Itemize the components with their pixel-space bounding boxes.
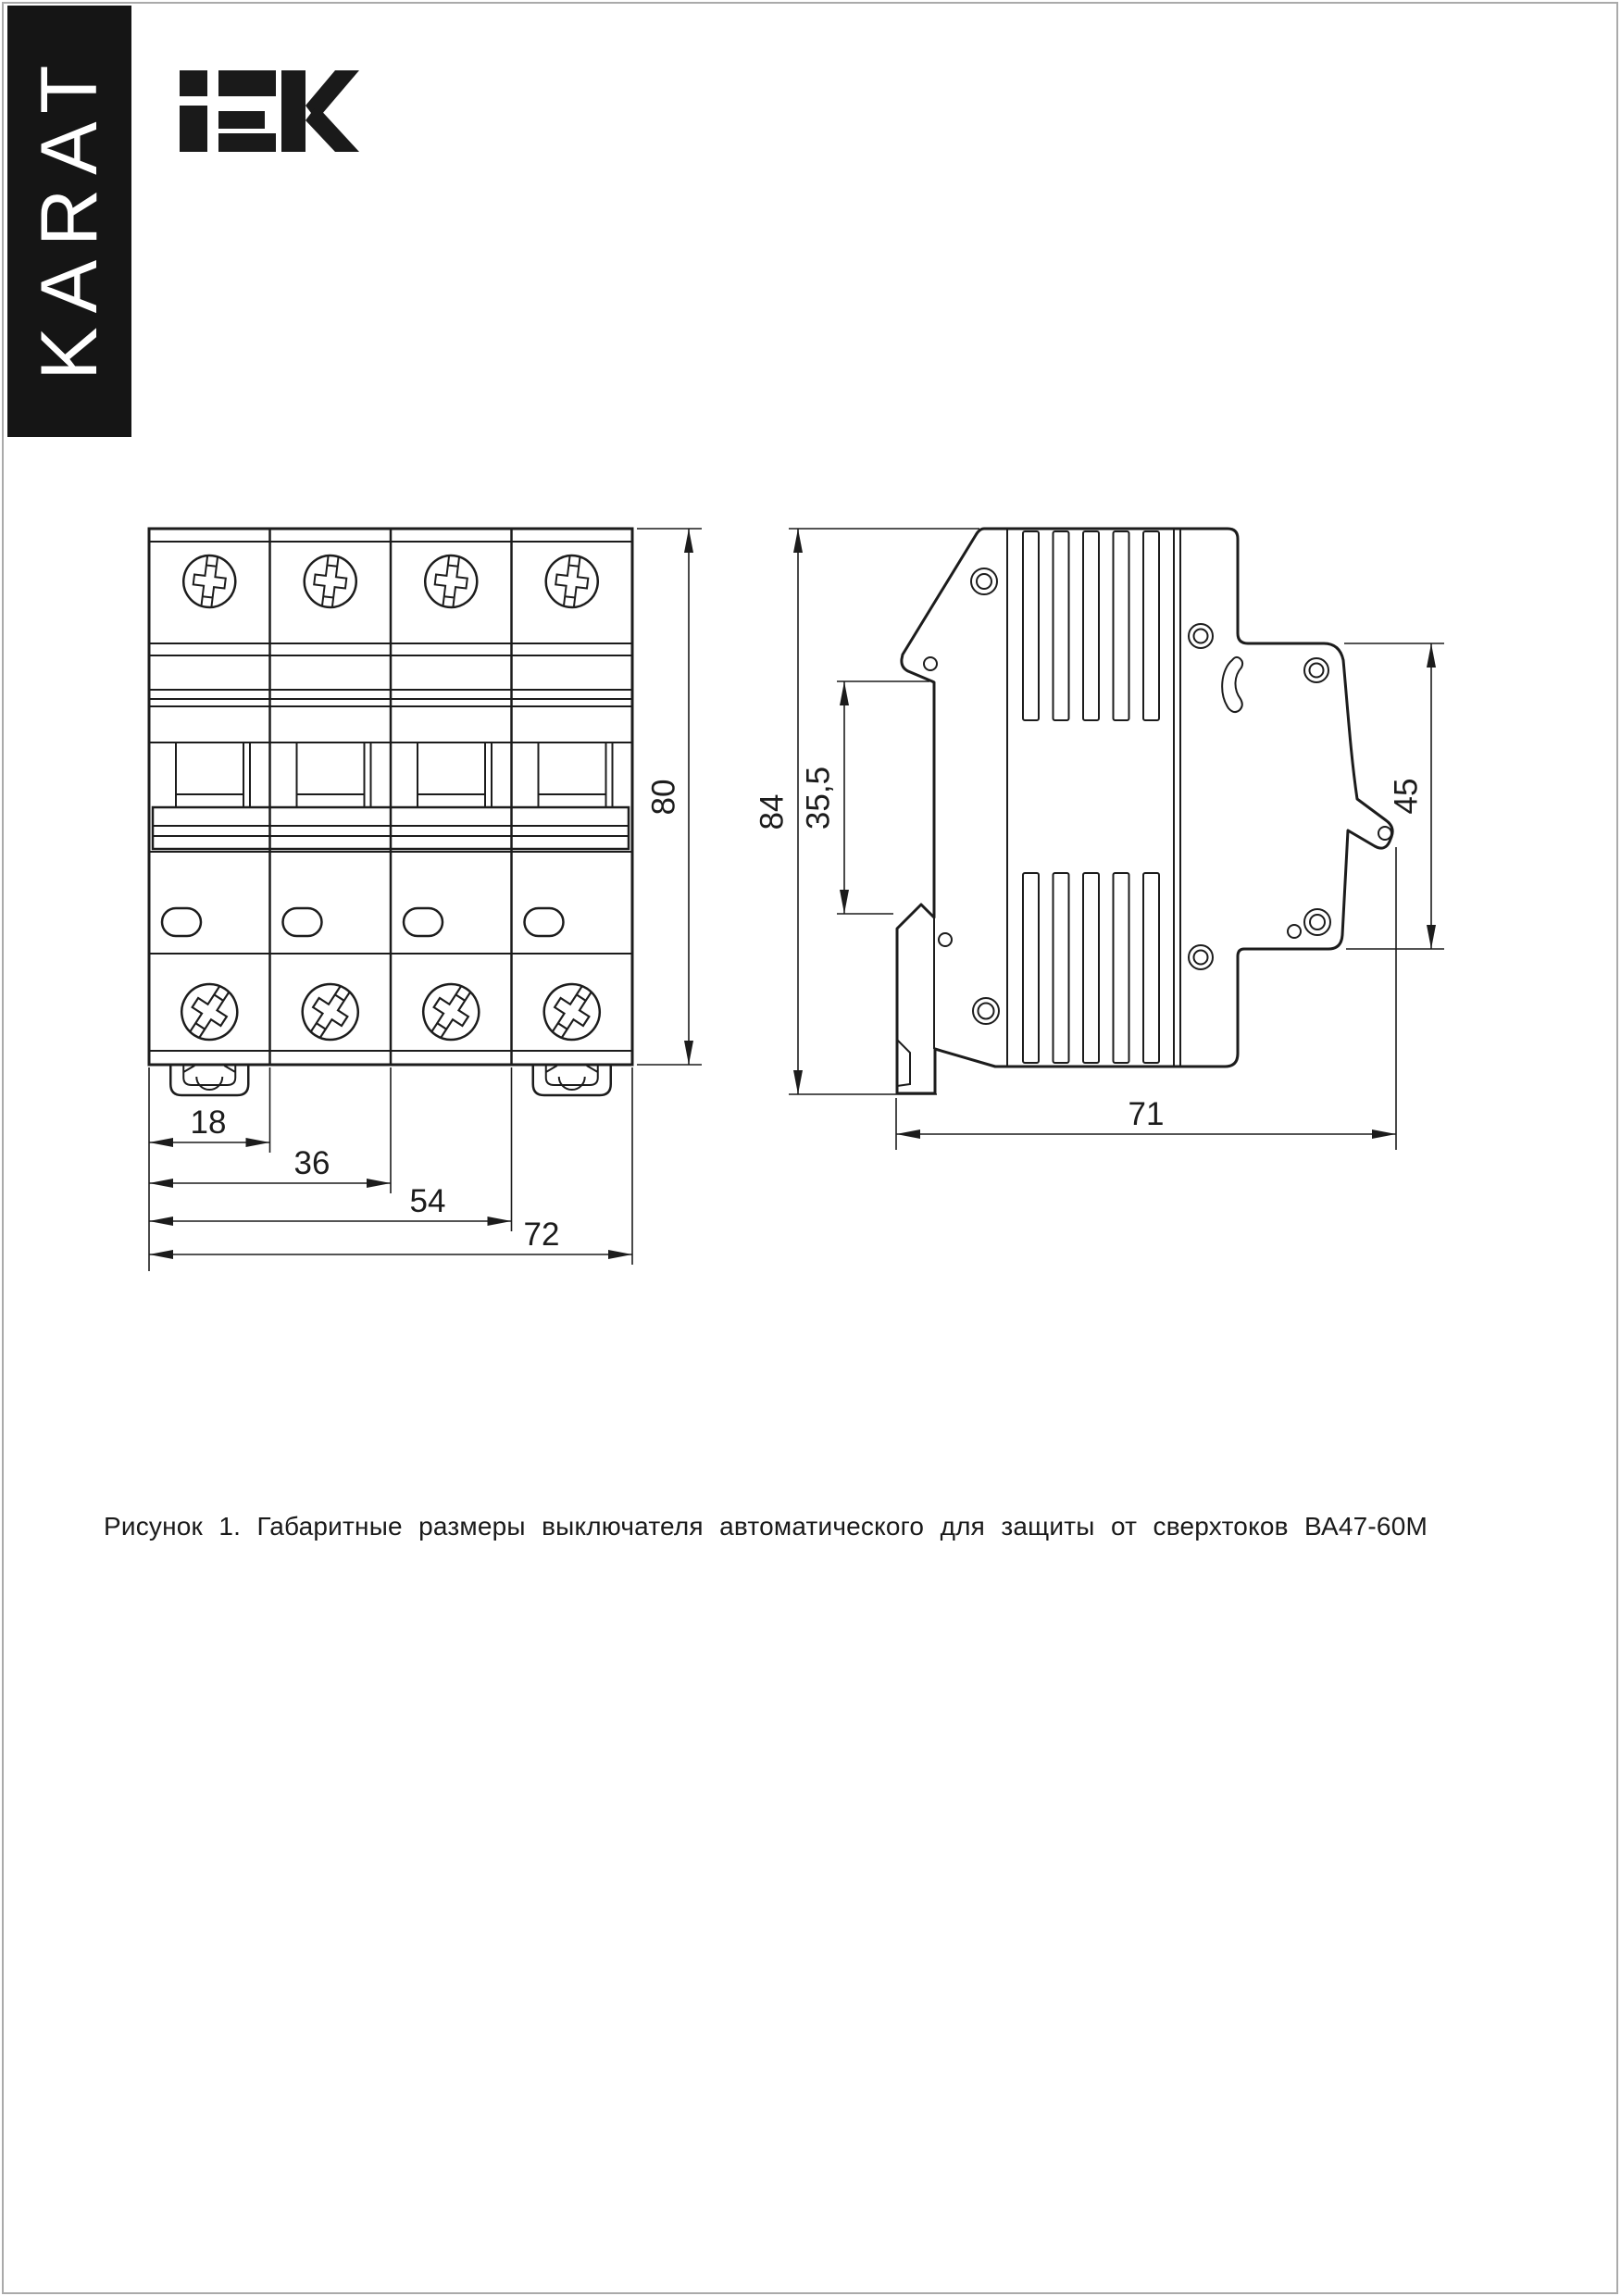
dim-label-71: 71 [1128,1096,1165,1132]
side-view-drawing [897,529,1392,1093]
dim-label-18: 18 [191,1104,227,1141]
dim-label-80: 80 [645,780,681,816]
dim-label-72: 72 [524,1217,560,1253]
kidney-slot [1222,657,1242,712]
dim-label-45: 45 [1388,779,1424,815]
dim-label-54: 54 [410,1183,446,1219]
dim-label-35-5: 35,5 [800,767,836,830]
vent-slots-top [1023,531,1159,720]
technical-drawing: 18 36 54 72 80 84 35,5 45 71 [0,0,1621,2296]
dim-label-84: 84 [754,794,790,830]
rivets [924,568,1391,1024]
dim-label-36: 36 [294,1145,330,1181]
dimension-annotations [149,529,1444,1271]
figure-caption: Рисунок 1. Габаритные размеры выключател… [104,1512,1428,1541]
document-page: KARAT [0,0,1621,2296]
vent-slots-bottom [1023,873,1159,1063]
front-view-drawing [149,529,632,1095]
